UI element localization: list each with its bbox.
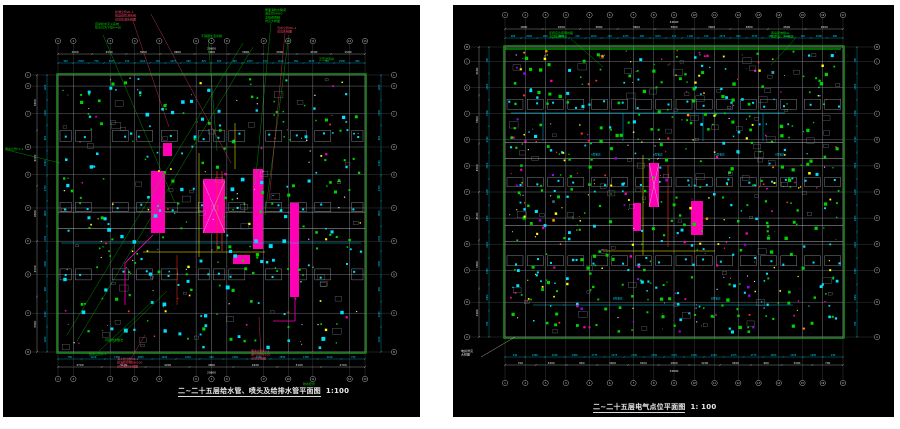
cad-text: 34800 [670,369,679,373]
cad-text: 2550 [339,60,345,63]
cad-text: 28800 [207,371,216,375]
cad-text: 2 [525,382,527,385]
cad-text: B型客房 [711,297,721,301]
cad-text: 1800 [821,25,828,29]
cad-text: 详见喷淋系统图 [115,16,136,21]
cad-text: 5 [589,382,591,385]
cad-text: 900 [378,286,381,291]
cad-text: 2700 [378,185,381,191]
pipe-runs [61,235,361,321]
cad-text: 3300 [33,99,37,106]
cad-text: E [466,217,468,220]
cad-text: 2775 [592,354,598,357]
cad-text: 同层排水做法 [105,337,123,342]
cad-text: G [466,165,468,168]
cad-text: 3180 [475,67,479,74]
cad-text: 1500 [344,50,351,54]
cad-text: 8 [653,382,655,385]
cad-text: 900 [543,35,548,38]
cad-text: 7 [633,382,635,385]
cad-text: 2100 [854,136,857,142]
cad-text: 6 [195,378,197,381]
cad-text: 4500 [783,25,790,29]
cad-text: 3200 [640,361,647,365]
cad-text: 2400 [651,354,657,357]
cad-text: 3 [109,378,111,381]
cad-text: 11 [713,382,716,385]
core [143,123,299,305]
cad-text: 4 [134,40,136,43]
cad-text: 2220 [790,354,796,357]
cad-text: 正压送风井 [319,56,334,61]
cad-text: G [876,165,878,168]
cad-text: 2250 [232,356,238,359]
cad-text: F [876,191,878,194]
cad-text: 详见大样图 [265,18,280,23]
cad-text: 2400 [572,354,578,357]
cad-text: K [27,85,29,88]
cad-text: K [876,87,878,90]
cad-text: 雨水立管YL-1 [5,146,24,151]
cad-text: 16 [821,382,824,385]
cad-text: 大样图 [461,352,470,357]
cad-text: 3475 [655,35,661,38]
cad-text: 2100 [90,356,96,359]
cad-text: K [393,85,395,88]
cad-text: C [876,269,878,272]
cad-text: J [466,113,468,116]
riser-core [290,203,299,297]
cad-text: 17 [842,382,845,385]
cad-text: 2475 [170,60,176,63]
cad-text: 2475 [623,35,629,38]
cad-text: 2100 [44,311,47,317]
cad-text: 1500 [486,268,489,274]
cad-text: 3300 [486,162,489,168]
cad-text: A [466,336,468,339]
cad-text: 2100 [378,109,381,115]
cad-text: 150 [704,35,709,38]
cad-text: 28800 [207,47,216,51]
cad-text: 2250 [185,356,191,359]
cad-text: 150 [294,60,299,63]
cad-text: 950 [355,60,360,63]
core [603,155,715,255]
cad-text: 150 [156,60,161,63]
cad-text: 5 [589,14,591,17]
cad-text: 3300 [33,321,37,328]
cad-text: 3475 [752,35,758,38]
cad-text: 2400 [486,83,489,89]
cad-text: M [466,46,468,49]
plan-scale-label: 1: 100 [690,403,716,411]
cad-text: 780 [486,57,489,62]
cad-text: 5100 [296,363,303,367]
cad-text: 2700 [340,363,347,367]
cad-text: 11 [713,14,716,17]
cad-text: B [27,351,29,354]
cad-text: J [876,113,878,116]
cad-text: 13 [757,382,760,385]
cad-text: 2850 [138,356,144,359]
cad-text: 700 [518,361,524,365]
cad-text: L [27,74,29,77]
cad-text: 3300 [854,215,857,221]
plan-title-text: 二~二十五层电气点位平面图 [593,403,685,413]
cad-text: 900 [44,135,47,140]
cad-text: J [27,113,29,116]
cad-text: E [393,240,395,243]
cad-text: 3 [109,40,111,43]
leader-lines [481,39,795,357]
cad-text: 2 [73,378,75,381]
cad-text: 详见消防系统图 [117,363,138,368]
cad-text: 2100 [631,354,637,357]
cad-text: D [876,243,878,246]
cad-text: 给水立管JL-1 [89,351,107,356]
cad-text: 700 [825,361,831,365]
electrical-plan-title: 二~二十五层电气点位平面图1: 100 [593,402,716,412]
cad-text: 9 [673,14,675,17]
cad-text: M [876,46,878,49]
page: { "page": {"background": "#ffffff", "can… [0,0,900,429]
cad-text: C [27,312,29,315]
cad-text: 7 [211,378,213,381]
cad-text: 960 [579,361,585,365]
cad-text: 1200 [486,189,489,195]
cad-text: 1200 [161,356,167,359]
cad-text: 12 [348,40,351,43]
cad-text: 1500 [44,260,47,266]
cad-text: 1500 [854,109,857,115]
cad-text: 16 [821,14,824,17]
cad-text: 2500 [526,35,532,38]
cad-text: 3600 [708,25,715,29]
cad-text: 7 [211,40,213,43]
cad-text: 5 [159,40,161,43]
cad-text: C [466,269,468,272]
cad-text: 3180 [475,309,479,316]
cad-text: 900 [209,356,214,359]
cad-text: 825 [202,60,207,63]
cad-text: H [27,146,29,149]
cad-text: 750 [351,356,356,359]
cad-text: 3600 [475,261,479,268]
cad-text: 10 [287,378,290,381]
cad-text: 1100 [591,35,597,38]
cad-text: F [393,207,395,210]
cad-text: E [27,240,29,243]
cad-text: 10 [693,382,696,385]
annotations: 喷淋立管ZL-1接自动喷淋系统详见喷淋系统图自动喷水灭火系统喷头均为下喷K=80… [5,7,334,386]
cad-text: 2700 [44,185,47,191]
cad-text: 4 [565,14,567,17]
symbols [509,50,840,334]
cad-text: K [466,87,468,90]
cad-text: 900 [378,135,381,140]
cad-text: 825 [217,60,222,63]
cad-text: 2400 [770,354,776,357]
cad-text: 2475 [731,354,737,357]
cad-text: 1500 [44,160,47,166]
cad-text: 10 [693,14,696,17]
cad-text: 4200 [33,154,37,161]
cad-text: A [876,336,878,339]
cad-text: 300 [640,35,645,38]
cad-text: 1200 [378,84,381,90]
cad-text: 2100 [44,109,47,115]
cad-text: L [466,60,468,63]
cad-text: 2700 [44,235,47,241]
cad-text: 3200 [701,361,708,365]
cad-text: 4500 [475,212,479,219]
cad-text: B [876,301,878,304]
cad-text: 2775 [751,354,757,357]
cad-text: 4500 [33,210,37,217]
cad-text: 240 [831,354,836,357]
cad-text: 3400 [609,361,616,365]
cad-text: 2700 [76,363,83,367]
cad-text: 150 [125,60,130,63]
cad-text: 9 [263,378,265,381]
electrical-plan-canvas: 1122334455667788991010111112121313141415… [453,5,894,417]
cad-text: 1990 [810,354,816,357]
cad-text: 900 [186,60,191,63]
cad-text: F [27,207,29,210]
cad-text: 14 [777,382,780,385]
cad-text: 1100 [687,35,693,38]
cad-text: 3600 [174,50,181,54]
grid-axes: 1122334455667788991010111112121313141415… [464,12,879,385]
cad-text: 3475 [308,60,314,63]
cad-text: 2100 [486,241,489,247]
cad-text: D [466,243,468,246]
cad-text: 12 [737,14,740,17]
cad-text: 4200 [252,363,259,367]
cad-text: 2850 [279,356,285,359]
cad-text: 4 [565,382,567,385]
cad-text: 3300 [486,215,489,221]
cad-text: D [393,273,395,276]
cad-text: 13 [364,40,367,43]
cad-text: 750 [94,60,99,63]
cad-text: 8 [653,14,655,17]
cad-text: 4500 [106,50,113,54]
cad-text: 150 [575,35,580,38]
cad-text: 喷头均为下喷K=80 [95,25,121,30]
cad-text: 3125 [671,354,677,357]
cad-text: 150 [672,35,677,38]
electrical-plan-sheet: 1122334455667788991010111112121313141415… [453,5,894,417]
cad-text: 900 [44,286,47,291]
cad-text: 1 [504,14,506,17]
cad-text: 1500 [378,160,381,166]
cad-text: 2400 [854,294,857,300]
cad-text: 详见系统图 [277,29,292,34]
cad-text: 950 [63,60,68,63]
cad-text: 2 [73,40,75,43]
cad-text: 15 [801,382,804,385]
cad-text: 240 [513,354,518,357]
cad-text: 1200 [44,336,47,342]
cad-text: 沿顶板暗敷设 [549,34,567,39]
cad-text: 3400 [793,361,800,365]
cad-text: 12 [737,382,740,385]
cad-text: 1800 [378,210,381,216]
cad-text: 1200 [854,189,857,195]
riser-core [691,201,703,235]
cad-text: 480 [833,35,838,38]
cad-text: 10 [287,40,290,43]
plan-title-text: 二~二十五层给水管、喷头及给排水管平面图 [178,387,321,397]
cad-text: 900 [232,60,237,63]
cad-text: 12 [348,378,351,381]
cad-text: G [27,174,29,177]
cad-text: 4500 [310,50,317,54]
leader-lines [7,14,289,362]
cad-text: L [876,60,878,63]
cad-text: 2100 [327,356,333,359]
cad-text: 150 [801,35,806,38]
cad-text: 960 [764,361,770,365]
cad-text: E [876,217,878,220]
cad-text: 9 [263,40,265,43]
cad-text: 13 [364,378,367,381]
cad-text: 2100 [854,241,857,247]
cad-text: 3400 [732,361,739,365]
cad-text: 2100 [378,311,381,317]
plan-scale-label: 1:100 [326,387,349,395]
cad-text: 2 [525,14,527,17]
cad-text: 1500 [378,260,381,266]
cad-text: 3400 [548,361,555,365]
cad-text: 8 [226,378,228,381]
cad-text: 3 [545,382,547,385]
cad-text: G [393,174,395,177]
cad-text: L [393,74,395,77]
cad-text: A型客房 [653,153,663,157]
cad-text: 7 [633,14,635,17]
plumbing-plan-sheet: 1122334455667788991010111112121313LLKKJJ… [3,5,420,417]
cad-text: 2400 [486,294,489,300]
cad-text: 2475 [719,35,725,38]
cad-text: 9 [673,382,675,385]
cad-text: 780 [854,57,857,62]
riser-core [151,171,165,233]
riser-core [163,143,172,156]
cad-text: 4 [134,378,136,381]
cad-text: C [393,312,395,315]
cad-text: 2475 [247,60,253,63]
cad-text: 1800 [670,361,677,365]
cad-text: 2220 [552,354,558,357]
cad-text: 1800 [44,210,47,216]
cad-text: 34800 [670,20,679,24]
cad-text: 13 [757,14,760,17]
cad-text: 4200 [33,265,37,272]
cad-text: 4500 [475,164,479,171]
cad-text: 2100 [711,354,717,357]
cad-text: 6 [195,40,197,43]
cad-text: H [466,139,468,142]
cad-text: 6 [609,382,611,385]
cad-text: 11 [311,378,314,381]
cad-text: 3600 [475,116,479,123]
cad-text: 3800 [670,25,677,29]
cad-text: 2700 [378,235,381,241]
pipe-runs [505,49,841,305]
cad-text: 3600 [633,25,640,29]
cad-text: 3800 [595,25,602,29]
cad-text: 1100 [139,60,145,63]
plumbing-plan-canvas: 1122334455667788991010111112121313LLKKJJ… [3,5,420,417]
cad-text: 8 [226,40,228,43]
cad-text: 1500 [71,50,78,54]
cad-text: 1500 [486,109,489,115]
cad-text: H [876,139,878,142]
cad-text: 2400 [854,83,857,89]
cad-text: 2400 [691,354,697,357]
cad-text: H [393,146,395,149]
cad-text: 2500 [816,35,822,38]
cad-text: 2100 [486,136,489,142]
cad-text: 不锈钢生活水箱 [201,33,222,38]
cad-text: 底距地1.8m暗装 [771,34,794,39]
annotations: 走廊应急照明线路沿顶板暗敷设客房配电箱AL底距地1.8m暗装电井详见大样图A型客… [461,30,794,357]
riser-core [633,203,641,231]
cad-text: B [466,301,468,304]
cad-text: 1200 [378,336,381,342]
cad-text: 1350 [303,356,309,359]
cad-text: 1100 [278,60,284,63]
cad-text: 1500 [854,268,857,274]
cad-text: 4200 [164,363,171,367]
cad-text: 2475 [611,354,617,357]
cad-text: A型客房 [775,153,785,157]
cad-text: 780 [486,321,489,326]
cad-text: A型客房 [591,153,601,157]
cad-text: F [466,191,468,194]
cad-text: D [27,273,29,276]
cad-text: 780 [854,321,857,326]
cad-text: 4800 [208,363,215,367]
cad-text: 1 [57,378,59,381]
cad-text: 3300 [854,162,857,168]
cad-text: 150 [607,35,612,38]
cad-text: B [393,351,395,354]
cad-text: B型客房 [613,297,623,301]
cad-text: 1 [504,382,506,385]
plumbing-plan-title: 二~二十五层给水管、喷头及给排水管平面图1:100 [178,386,349,396]
cad-text: 11 [311,40,314,43]
cad-text: 17 [842,14,845,17]
cad-text: A型客房 [715,153,725,157]
cad-text: 1990 [532,354,538,357]
cad-text: 480 [511,35,516,38]
cad-text: 1200 [44,84,47,90]
cad-text: 750 [68,356,73,359]
cad-text: 5 [159,378,161,381]
cad-text: 1 [57,40,59,43]
cad-text: 1800 [520,25,527,29]
cad-text: 900 [736,35,741,38]
cad-text: 详见系统图 [251,355,266,360]
cad-text: 2550 [78,60,84,63]
cad-text: 3 [545,14,547,17]
cad-text: 14 [777,14,780,17]
dimensions: 1800450038003600380036003800450018004802… [475,20,858,373]
cad-text: 3800 [746,25,753,29]
